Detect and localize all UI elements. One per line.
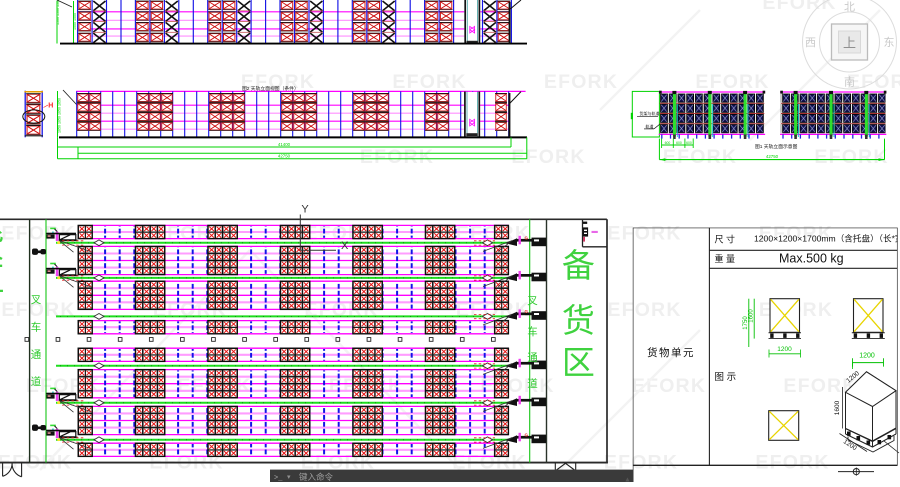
svg-text:600: 600 [676,141,682,145]
svg-text:北: 北 [844,1,855,14]
svg-text:>_: >_ [274,474,283,482]
svg-text:Y: Y [301,204,309,216]
svg-text:600: 600 [665,141,671,145]
svg-text:EFORK: EFORK [755,452,829,474]
svg-text:轨道: 轨道 [646,123,654,129]
svg-text:东: 东 [884,36,895,49]
svg-text:1200: 1200 [859,353,875,360]
svg-text:键入命令: 键入命令 [299,472,334,482]
svg-text:EFORK: EFORK [695,71,769,93]
svg-text:南: 南 [844,76,855,89]
svg-text:1650 1650 1650 1650: 1650 1650 1650 1650 [58,98,62,133]
svg-text:备: 备 [562,247,595,284]
svg-text:道: 道 [31,375,42,388]
svg-text:EFORK: EFORK [392,71,466,93]
svg-text:X: X [341,240,349,252]
svg-text:图 示: 图 示 [715,372,737,383]
svg-text:1200: 1200 [777,346,792,353]
svg-text:车: 车 [527,325,538,338]
svg-text:叉: 叉 [527,295,538,307]
svg-text:EFORK: EFORK [544,71,618,93]
svg-text:1200×1200×1700mm（含托盘）（长*宽*高）: 1200×1200×1700mm（含托盘）（长*宽*高） [754,233,900,244]
svg-text:车: 车 [31,320,42,333]
svg-text:EFORK: EFORK [607,223,681,245]
svg-text:货: 货 [0,228,5,264]
svg-text:H: H [48,103,53,110]
svg-text:1500 1500 1500: 1500 1500 1500 [56,0,60,25]
svg-text:重 量: 重 量 [715,253,736,264]
svg-text:42750: 42750 [278,154,291,159]
svg-text:G: G [525,235,529,240]
svg-text:EFORK: EFORK [814,146,888,168]
svg-text:区: 区 [562,344,595,381]
svg-text:尺 寸: 尺 寸 [715,234,736,245]
svg-text:上: 上 [843,36,856,51]
svg-text:1200: 1200 [842,438,858,452]
svg-text:EFORK: EFORK [663,146,737,168]
svg-text:1500 1500: 1500 1500 [73,13,77,30]
svg-text:EFORK: EFORK [511,146,585,168]
svg-text:EFORK: EFORK [607,299,681,321]
svg-text:图1 天轨立面示意图: 图1 天轨立面示意图 [755,143,798,150]
svg-text:EFORK: EFORK [360,146,434,168]
svg-text:通: 通 [527,352,538,364]
svg-text:叉: 叉 [31,294,42,306]
svg-text:区: 区 [0,261,5,297]
svg-text:G: G [525,432,529,437]
svg-text:1600: 1600 [834,400,841,415]
svg-text:1600: 1600 [749,309,755,323]
svg-text:货: 货 [562,302,595,339]
svg-text:通: 通 [31,349,42,361]
svg-text:1750: 1750 [743,316,749,330]
svg-text:货架与轨道: 货架与轨道 [640,110,660,116]
svg-text:西: 西 [805,37,816,49]
svg-text:600: 600 [686,141,692,145]
svg-text:▲: ▲ [624,477,631,483]
svg-text:42750: 42750 [766,154,779,159]
svg-text:道: 道 [527,377,538,390]
svg-text:▾: ▾ [287,474,291,482]
svg-text:Max.500 kg: Max.500 kg [779,252,844,266]
svg-text:货物单元: 货物单元 [647,346,695,359]
svg-text:41400: 41400 [278,142,291,147]
svg-text:G: G [525,309,529,314]
